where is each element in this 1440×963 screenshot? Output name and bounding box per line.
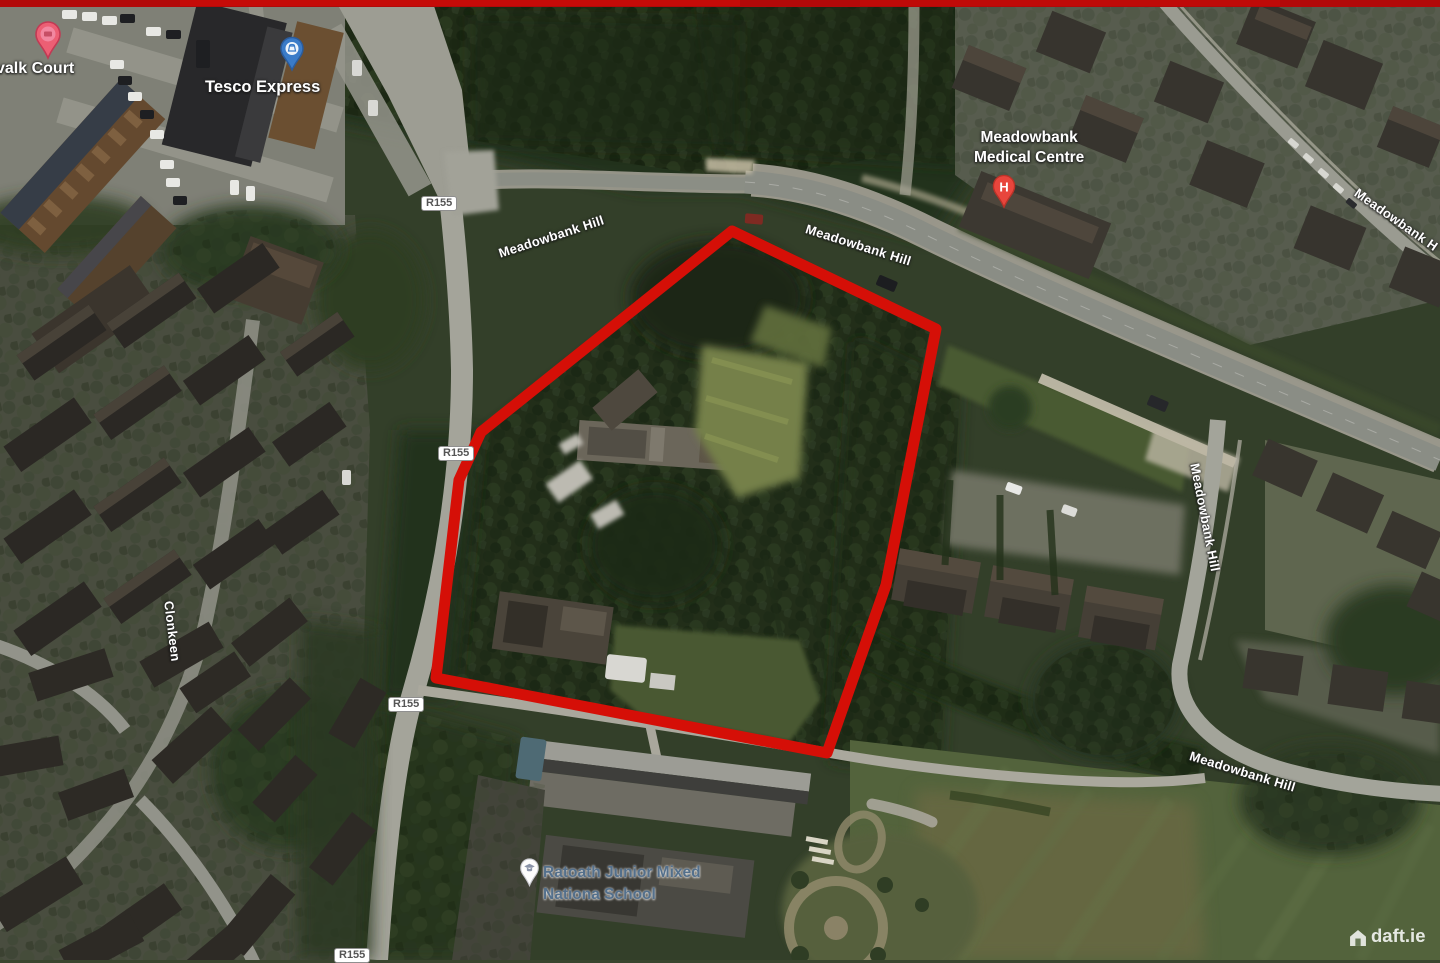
- svg-text:H: H: [999, 180, 1008, 195]
